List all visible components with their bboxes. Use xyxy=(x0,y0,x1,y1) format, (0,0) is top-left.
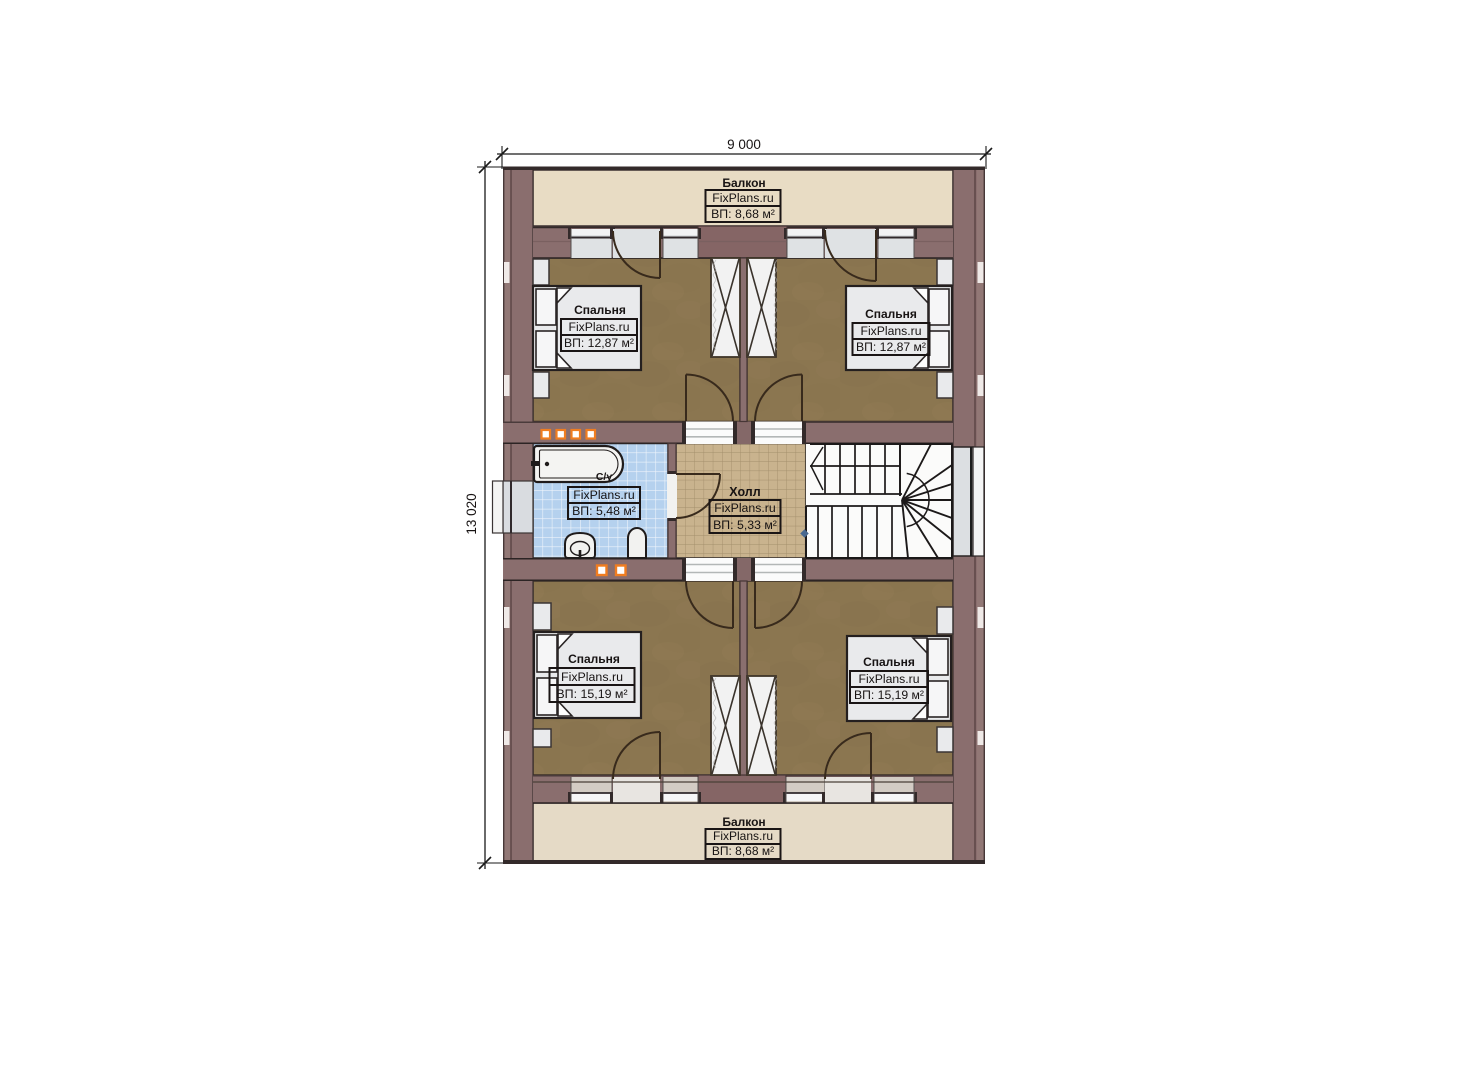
svg-text:ВП: 8,68 м²: ВП: 8,68 м² xyxy=(712,844,774,858)
svg-text:FixPlans.ru: FixPlans.ru xyxy=(561,670,623,684)
svg-text:ВП: 8,68 м²: ВП: 8,68 м² xyxy=(711,207,775,221)
svg-text:Спальня: Спальня xyxy=(865,307,917,321)
svg-text:Балкон: Балкон xyxy=(722,176,765,190)
svg-text:13 020: 13 020 xyxy=(464,493,479,534)
svg-text:ВП: 12,87 м²: ВП: 12,87 м² xyxy=(564,336,634,350)
svg-text:Спальня: Спальня xyxy=(863,655,915,669)
svg-text:FixPlans.ru: FixPlans.ru xyxy=(569,320,630,334)
svg-text:С/у: С/у xyxy=(596,471,613,483)
svg-text:ВП: 5,48 м²: ВП: 5,48 м² xyxy=(572,504,636,518)
svg-text:FixPlans.ru: FixPlans.ru xyxy=(859,672,920,686)
svg-text:Балкон: Балкон xyxy=(722,815,765,829)
svg-text:FixPlans.ru: FixPlans.ru xyxy=(573,488,635,502)
svg-text:FixPlans.ru: FixPlans.ru xyxy=(712,191,774,205)
svg-text:FixPlans.ru: FixPlans.ru xyxy=(713,829,773,843)
svg-text:Спальня: Спальня xyxy=(574,303,626,317)
svg-text:ВП: 12,87 м²: ВП: 12,87 м² xyxy=(856,340,926,354)
svg-text:ВП: 15,19 м²: ВП: 15,19 м² xyxy=(854,688,924,702)
svg-text:Спальня: Спальня xyxy=(568,652,620,666)
svg-text:9 000: 9 000 xyxy=(727,137,761,152)
svg-text:Холл: Холл xyxy=(729,485,760,499)
svg-text:FixPlans.ru: FixPlans.ru xyxy=(714,501,776,515)
svg-text:ВП: 15,19 м²: ВП: 15,19 м² xyxy=(556,687,627,701)
svg-text:ВП: 5,33 м²: ВП: 5,33 м² xyxy=(713,518,777,532)
svg-text:FixPlans.ru: FixPlans.ru xyxy=(861,324,922,338)
